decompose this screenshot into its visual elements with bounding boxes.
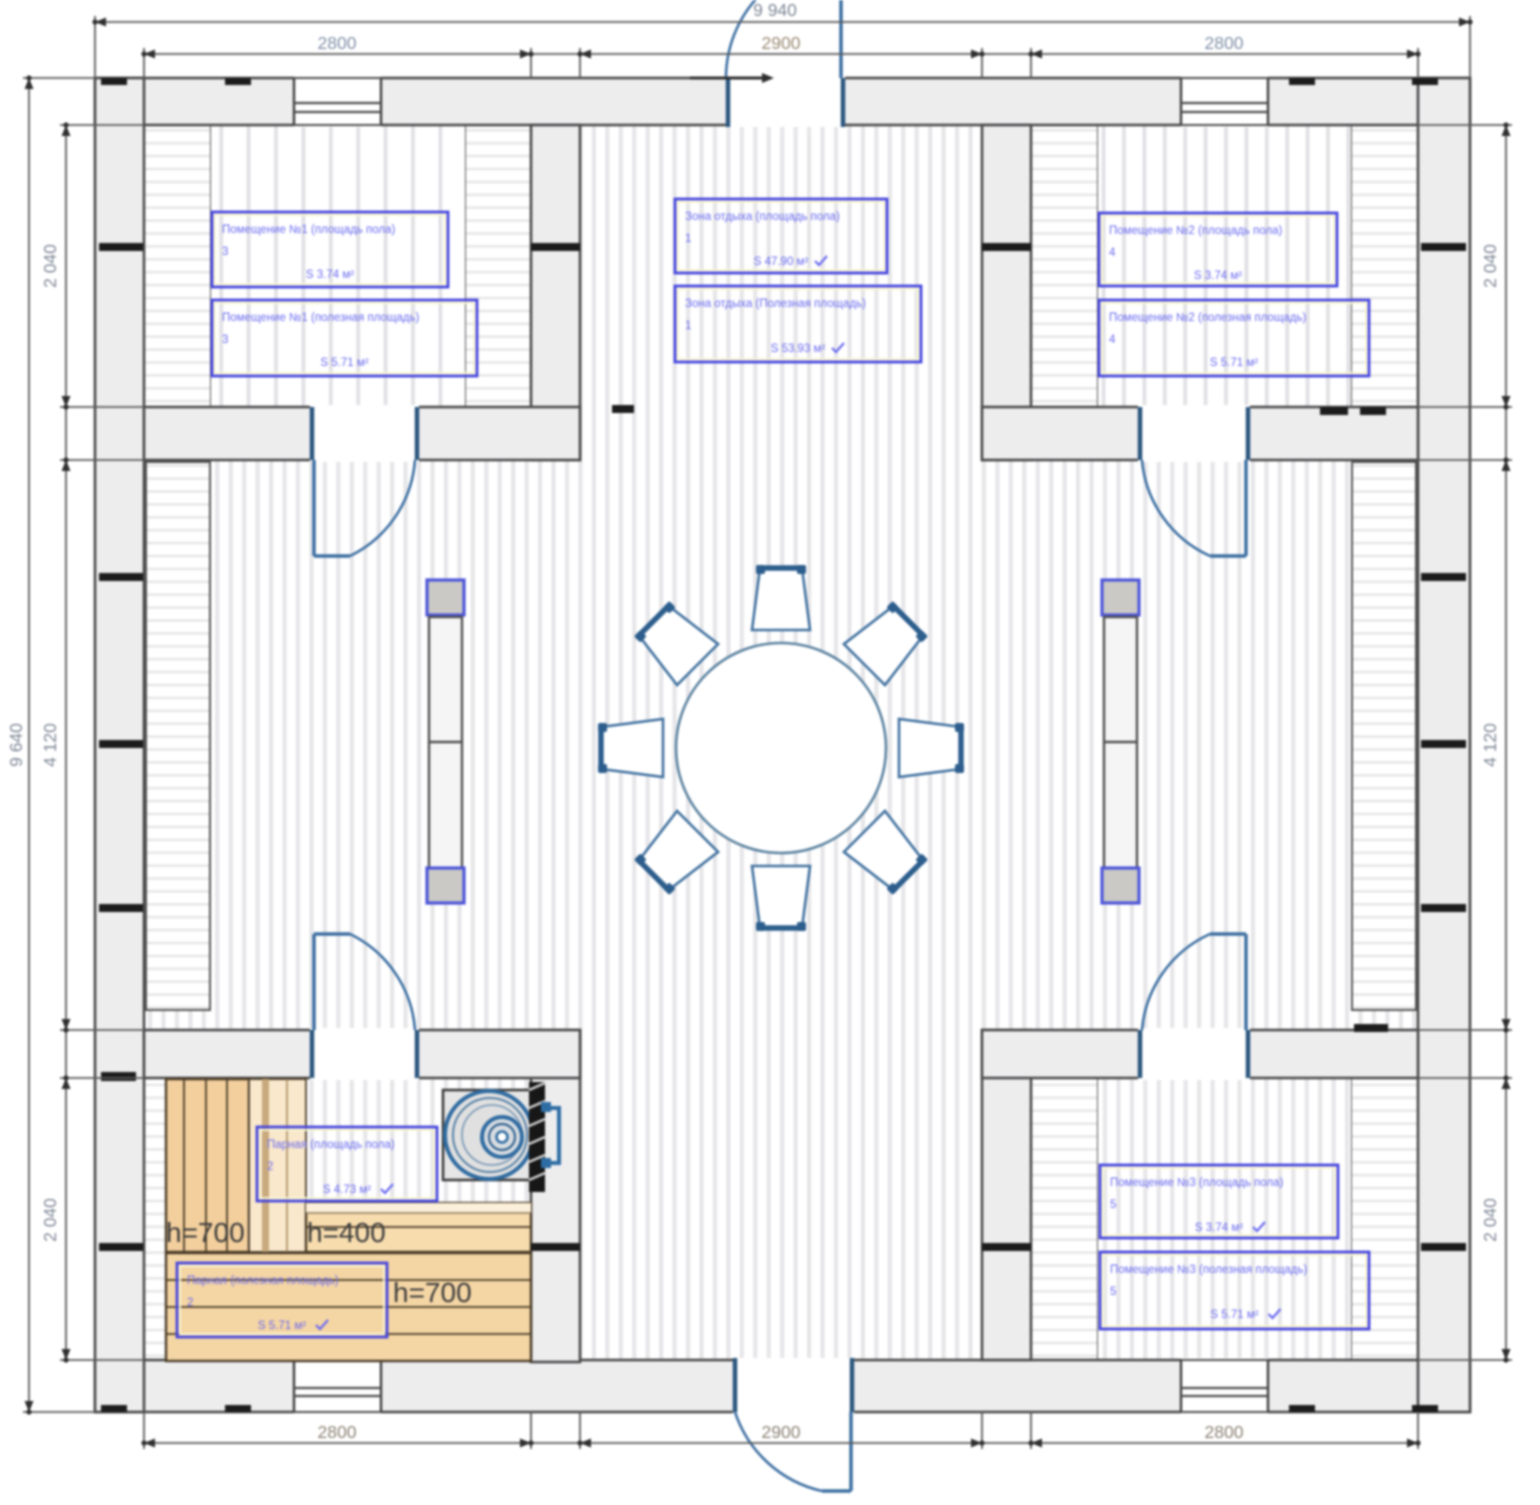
svg-text:Помещение №2 (площадь пола): Помещение №2 (площадь пола) xyxy=(1109,225,1283,237)
svg-text:9 640: 9 640 xyxy=(6,723,26,767)
svg-text:2900: 2900 xyxy=(762,1422,801,1442)
svg-text:Помещение №1 (полезная площадь: Помещение №1 (полезная площадь) xyxy=(222,312,420,324)
svg-text:2 040: 2 040 xyxy=(40,1198,60,1242)
svg-text:1: 1 xyxy=(685,320,691,332)
svg-text:h=400: h=400 xyxy=(307,1217,386,1248)
svg-text:S 53.93 м²: S 53.93 м² xyxy=(771,343,826,355)
svg-text:S 47.90 м²: S 47.90 м² xyxy=(754,256,809,268)
svg-text:h=700: h=700 xyxy=(393,1277,472,1308)
svg-text:2800: 2800 xyxy=(1205,1422,1244,1442)
svg-text:Помещение №3 (площадь пола): Помещение №3 (площадь пола) xyxy=(1110,1177,1284,1189)
svg-text:Парная (площадь пола): Парная (площадь пола) xyxy=(267,1139,395,1151)
svg-text:2: 2 xyxy=(187,1297,193,1309)
svg-text:1: 1 xyxy=(685,233,691,245)
svg-text:Помещение №2 (полезная площадь: Помещение №2 (полезная площадь) xyxy=(1109,312,1307,324)
svg-text:4: 4 xyxy=(1109,334,1116,346)
svg-text:2800: 2800 xyxy=(318,1422,357,1442)
svg-text:S 3.74 м²: S 3.74 м² xyxy=(1195,1222,1243,1234)
svg-text:h=700: h=700 xyxy=(166,1217,245,1248)
svg-text:2 040: 2 040 xyxy=(1480,244,1500,288)
svg-text:2 040: 2 040 xyxy=(1480,1198,1500,1242)
svg-text:2900: 2900 xyxy=(762,33,801,53)
svg-text:3: 3 xyxy=(222,246,228,258)
svg-text:3: 3 xyxy=(222,334,228,346)
svg-text:S 5.71 м²: S 5.71 м² xyxy=(320,357,368,369)
svg-text:Помещение №3 (полезная площадь: Помещение №3 (полезная площадь) xyxy=(1110,1264,1308,1276)
svg-text:5: 5 xyxy=(1110,1286,1116,1298)
svg-text:5: 5 xyxy=(1110,1199,1116,1211)
svg-text:4 120: 4 120 xyxy=(40,723,60,767)
svg-text:S 3.74 м²: S 3.74 м² xyxy=(1194,270,1242,282)
svg-text:S 5.71 м²: S 5.71 м² xyxy=(258,1320,306,1332)
svg-text:4: 4 xyxy=(1109,247,1116,259)
svg-text:9 940: 9 940 xyxy=(753,0,797,20)
svg-text:4 120: 4 120 xyxy=(1480,723,1500,767)
svg-text:Зона отдыха (площадь пола): Зона отдыха (площадь пола) xyxy=(685,211,840,223)
svg-text:S 5.71 м²: S 5.71 м² xyxy=(1210,1309,1258,1321)
svg-text:S 3.74 м²: S 3.74 м² xyxy=(306,269,354,281)
svg-text:2800: 2800 xyxy=(318,33,357,53)
svg-text:2800: 2800 xyxy=(1205,33,1244,53)
svg-text:S 4.73 м²: S 4.73 м² xyxy=(323,1184,371,1196)
svg-text:Зона отдыха (Полезная площадь): Зона отдыха (Полезная площадь) xyxy=(685,298,866,310)
svg-text:2: 2 xyxy=(267,1161,273,1173)
svg-text:2 040: 2 040 xyxy=(40,244,60,288)
svg-text:Парная (полезная площадь): Парная (полезная площадь) xyxy=(187,1275,339,1287)
svg-text:Помещение №1 (площадь пола): Помещение №1 (площадь пола) xyxy=(222,224,396,236)
svg-text:S 5.71 м²: S 5.71 м² xyxy=(1210,357,1258,369)
